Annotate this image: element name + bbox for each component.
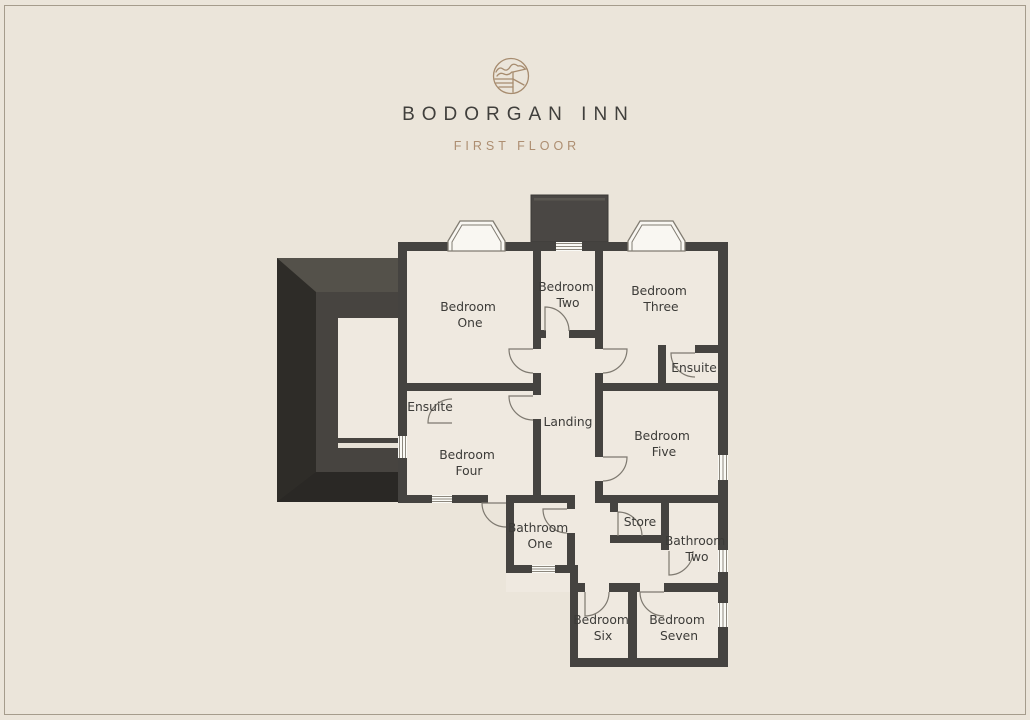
roof-lightwell-shape [277,258,398,502]
room-label-ensuite-bedroom-three: Ensuite [671,361,717,375]
chimney-block [531,195,608,242]
bay-window-bedroom-one [448,221,505,251]
room-label-store: Store [624,515,657,529]
floor-plan-page: BODORGAN INN FIRST FLOOR [0,0,1030,720]
floor-plan: Bedroom One Bedroom Two Bedroom Three En… [0,0,1030,720]
room-label-ensuite-bedroom-four: Ensuite [407,400,453,414]
room-label-landing: Landing [543,415,592,429]
bay-window-bedroom-three [628,221,685,251]
